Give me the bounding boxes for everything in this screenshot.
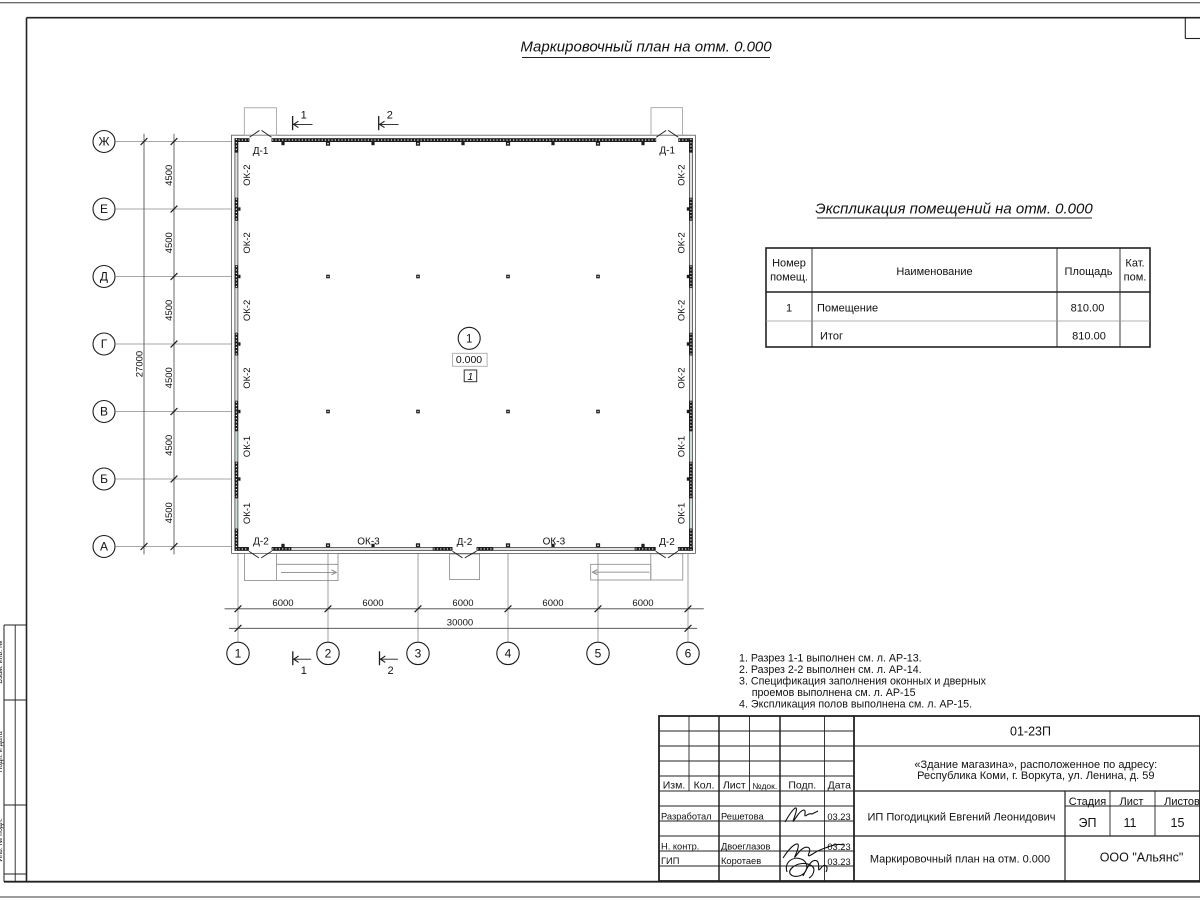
svg-text:ОК-1: ОК-1 [676,503,687,524]
svg-text:Площадь: Площадь [1065,266,1113,278]
svg-text:ГИП: ГИП [661,856,679,866]
svg-text:ОК-1: ОК-1 [242,436,253,457]
svg-text:Лист: Лист [1120,796,1144,808]
svg-text:Ж: Ж [98,135,109,149]
svg-text:Маркировочный план на отм. 0.0: Маркировочный план на отм. 0.000 [870,853,1050,865]
svg-text:6000: 6000 [452,598,473,609]
svg-text:1. Разрез 1-1 выполнен см. л.: 1. Разрез 1-1 выполнен см. л. АР-13. [739,653,922,665]
svg-text:А: А [100,540,108,554]
svg-text:2: 2 [325,647,332,661]
svg-text:6000: 6000 [542,598,563,609]
svg-text:810.00: 810.00 [1072,331,1106,343]
svg-text:ОК-2: ОК-2 [676,232,687,253]
svg-text:ЭП: ЭП [1079,816,1097,830]
svg-text:ОК-2: ОК-2 [676,367,687,388]
svg-text:ОК-2: ОК-2 [242,165,253,186]
svg-text:27000: 27000 [134,351,145,377]
svg-text:1: 1 [466,334,472,346]
svg-text:Е: Е [100,202,108,216]
svg-text:4500: 4500 [164,232,175,253]
svg-text:Д: Д [100,270,108,284]
svg-text:помещ.: помещ. [770,272,808,284]
svg-text:30000: 30000 [447,618,473,629]
svg-text:Кат.: Кат. [1125,258,1144,270]
svg-text:Листов: Листов [1164,796,1200,808]
svg-text:4500: 4500 [164,300,175,321]
svg-text:2. Разрез 2-2 выполнен см. л.: 2. Разрез 2-2 выполнен см. л. АР-14. [739,664,922,676]
svg-text:Лист: Лист [723,779,746,791]
svg-text:Номер: Номер [772,258,806,270]
svg-text:3. Спецификация заполнения око: 3. Спецификация заполнения оконных и две… [739,676,987,688]
svg-text:Д-2: Д-2 [659,537,675,548]
svg-text:№док.: №док. [752,781,777,791]
svg-text:проемов выполнена см. л. АР-15: проемов выполнена см. л. АР-15 [752,687,916,699]
svg-text:810.00: 810.00 [1071,303,1105,315]
svg-text:1: 1 [301,110,307,122]
svg-text:Подп.: Подп. [788,779,816,791]
svg-text:Итог: Итог [820,331,843,343]
svg-text:Решетова: Решетова [721,811,764,821]
svg-text:ОК-2: ОК-2 [676,300,687,321]
svg-text:4500: 4500 [164,367,175,388]
svg-text:Н. контр.: Н. контр. [661,842,699,852]
svg-text:Маркировочный план на отм. 0.0: Маркировочный план на отм. 0.000 [520,39,772,56]
svg-text:Д-1: Д-1 [659,146,675,157]
svg-text:ИП Погодицкий Евгений Леонидов: ИП Погодицкий Евгений Леонидович [868,812,1056,824]
svg-text:5: 5 [595,647,602,661]
svg-text:Коротаев: Коротаев [721,856,761,866]
svg-text:1: 1 [235,647,242,661]
svg-text:2: 2 [387,110,393,122]
svg-text:Стадия: Стадия [1069,796,1107,808]
svg-text:ОК-2: ОК-2 [242,300,253,321]
svg-text:В: В [100,405,108,419]
svg-text:4: 4 [505,647,512,661]
svg-text:4500: 4500 [164,435,175,456]
svg-text:4500: 4500 [164,165,175,186]
svg-text:Б: Б [100,472,108,486]
svg-text:4500: 4500 [164,502,175,523]
svg-text:03.23: 03.23 [827,812,850,822]
svg-text:Двоеглазов: Двоеглазов [721,842,770,852]
svg-text:Наименование: Наименование [896,266,972,278]
svg-text:ОК-3: ОК-3 [357,536,380,547]
svg-text:Взам. инв. №: Взам. инв. № [0,640,4,683]
svg-text:Д-2: Д-2 [457,537,473,548]
svg-text:03.23: 03.23 [827,857,850,867]
svg-text:6000: 6000 [272,598,293,609]
svg-text:6000: 6000 [632,598,653,609]
svg-text:4. Экспликация полов выполнена: 4. Экспликация полов выполнена см. л. АР… [739,699,972,711]
svg-text:ОК-2: ОК-2 [242,367,253,388]
svg-text:11: 11 [1124,816,1137,830]
svg-text:15: 15 [1171,816,1185,830]
svg-text:Подп. и дата: Подп. и дата [0,731,4,772]
svg-text:ОК-1: ОК-1 [676,436,687,457]
svg-text:Помещение: Помещение [817,303,878,315]
svg-text:2: 2 [387,665,393,677]
svg-text:Д-1: Д-1 [253,146,269,157]
svg-text:Разработал: Разработал [661,811,712,821]
svg-text:03.23: 03.23 [827,842,850,852]
svg-text:Изм.: Изм. [663,779,686,791]
svg-text:0.000: 0.000 [456,354,482,366]
svg-text:ОК-3: ОК-3 [543,536,566,547]
svg-text:Дата: Дата [828,779,851,791]
svg-text:Инв. № подл.: Инв. № подл. [0,818,4,862]
svg-text:Кол.: Кол. [694,779,715,791]
svg-text:ОК-2: ОК-2 [676,165,687,186]
svg-text:Республика Коми, г. Воркута, у: Республика Коми, г. Воркута, ул. Ленина,… [917,770,1154,782]
svg-text:3: 3 [415,647,422,661]
svg-text:1: 1 [301,665,307,677]
svg-text:ОК-1: ОК-1 [242,503,253,524]
svg-text:пом.: пом. [1124,272,1147,284]
svg-text:1: 1 [467,371,473,383]
svg-text:Д-2: Д-2 [253,536,269,547]
svg-text:01-23П: 01-23П [1010,724,1051,738]
svg-text:6: 6 [685,647,692,661]
svg-text:Экспликация помещений на отм.: Экспликация помещений на отм. 0.000 [815,201,1093,218]
svg-text:ООО "Альянс": ООО "Альянс" [1100,851,1184,865]
svg-text:1: 1 [786,303,792,315]
svg-text:6000: 6000 [362,598,383,609]
svg-text:ОК-2: ОК-2 [242,232,253,253]
svg-text:Г: Г [101,337,108,351]
